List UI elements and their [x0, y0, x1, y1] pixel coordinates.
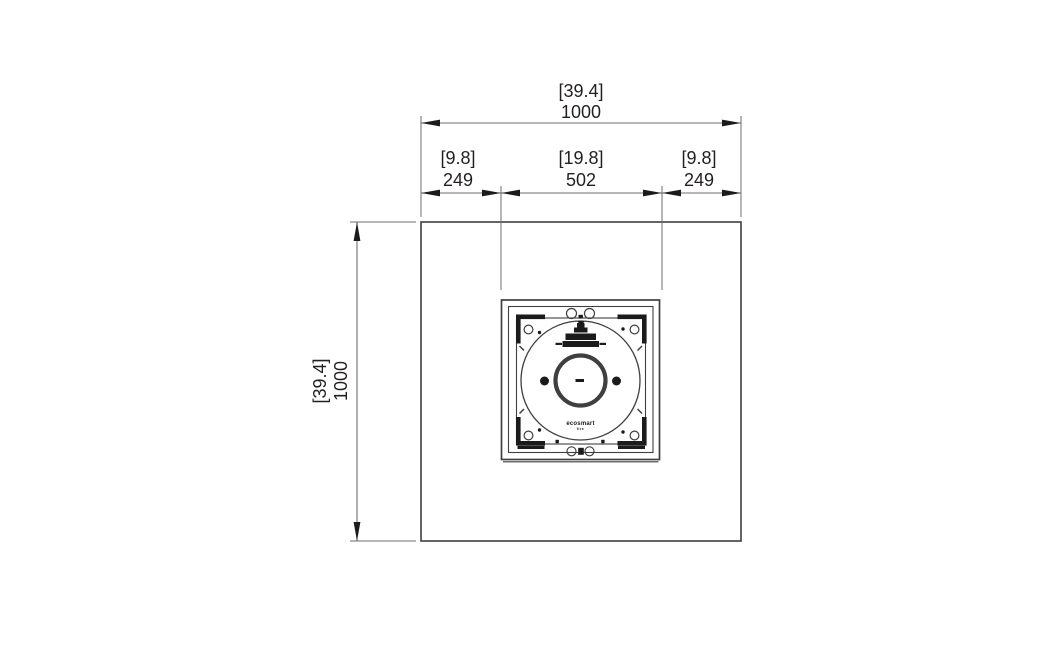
jet-part — [574, 328, 588, 333]
dimension-label-inches: [9.8] — [681, 148, 716, 168]
arrowhead-right — [722, 120, 741, 127]
corner-bracket — [516, 417, 521, 446]
arrowhead — [482, 190, 501, 197]
dimension-label-inches: [19.8] — [558, 148, 603, 168]
dimension-label-mm: 1000 — [331, 361, 351, 401]
corner-bracket — [642, 417, 647, 446]
dimension-label-mm: 249 — [684, 170, 714, 190]
index-tick — [638, 409, 643, 414]
latch-nub — [578, 448, 584, 455]
index-tick — [638, 346, 643, 351]
screw-hole — [630, 431, 639, 440]
arrowhead-top — [354, 222, 361, 241]
vent-hole — [567, 309, 577, 319]
side-knob — [612, 377, 621, 386]
dimension-margin-right: [9.8] 249 — [681, 148, 716, 190]
dimension-overall-height: [39.4] 1000 — [310, 222, 416, 541]
index-tick — [520, 409, 525, 414]
dimension-top-segments: [9.8] 249 [19.8] 502 [9.8] 249 — [421, 148, 741, 290]
dimension-label-inches: [39.4] — [558, 81, 603, 101]
jet-part — [556, 343, 563, 345]
screw-hole — [524, 325, 533, 334]
jet-part — [566, 334, 597, 341]
dimension-label-mm: 502 — [566, 170, 596, 190]
locating-dot — [538, 428, 541, 431]
jet-assembly — [556, 323, 607, 347]
technical-drawing-page: [39.4] 1000 [9.8] 249 [19.8] 502 [9.8] 2… — [0, 0, 1056, 653]
screw-hole — [524, 431, 533, 440]
dimension-label-mm: 1000 — [561, 102, 601, 122]
dimension-margin-left: [9.8] 249 — [440, 148, 475, 190]
jet-part — [563, 341, 600, 347]
corner-bracket — [618, 446, 645, 449]
vent-hole — [585, 447, 594, 456]
vent-hole — [567, 447, 576, 456]
side-knob — [540, 377, 549, 386]
burner-insert: ecosmart fire — [502, 300, 660, 462]
tab-mark — [601, 440, 604, 443]
arrowhead — [501, 190, 520, 197]
arrowhead — [421, 190, 440, 197]
top-band-details — [567, 309, 595, 327]
dimension-label-inches: [39.4] — [310, 358, 330, 403]
bottom-band-details — [556, 440, 605, 456]
jet-part — [600, 343, 607, 345]
dimension-label-inches: [9.8] — [440, 148, 475, 168]
corner-bracket — [642, 315, 647, 344]
arrowhead-bottom — [354, 522, 361, 541]
dimension-burner-width: [19.8] 502 — [558, 148, 603, 190]
brand-logo-subtext: fire — [577, 427, 585, 431]
brand-logo: ecosmart fire — [566, 421, 594, 431]
screw-hole — [630, 325, 639, 334]
vent-hole — [585, 309, 595, 319]
arrowhead — [662, 190, 681, 197]
latch-nub — [579, 315, 583, 319]
corner-bracket — [518, 446, 545, 449]
dimension-label-mm: 249 — [443, 170, 473, 190]
arrowhead-left — [421, 120, 440, 127]
locating-dot — [538, 331, 541, 334]
arrowhead — [643, 190, 662, 197]
rotated-dimension-text: [39.4] 1000 — [310, 358, 351, 403]
index-tick — [520, 346, 525, 351]
tab-mark — [556, 440, 559, 443]
arrowhead — [722, 190, 741, 197]
locating-dot — [621, 327, 624, 330]
locating-dot — [621, 430, 624, 433]
center-dash — [576, 379, 585, 382]
corner-bracket — [516, 315, 521, 344]
fire-table-plan-drawing: [39.4] 1000 [9.8] 249 [19.8] 502 [9.8] 2… — [0, 0, 1056, 653]
